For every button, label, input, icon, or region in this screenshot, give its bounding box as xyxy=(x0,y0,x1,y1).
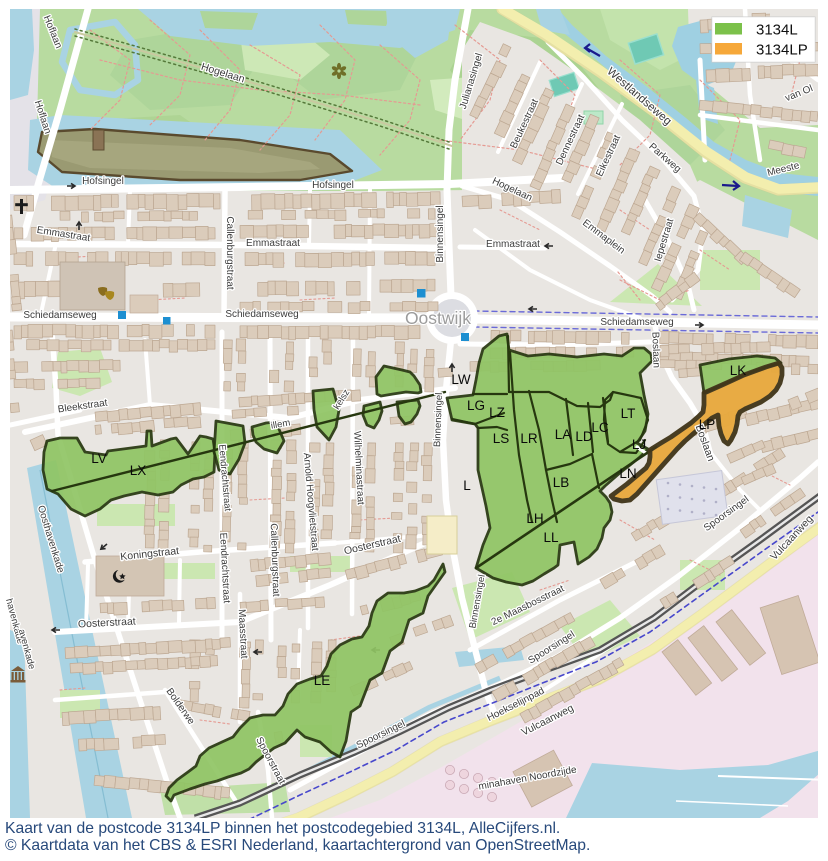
svg-text:Schiedamseweg: Schiedamseweg xyxy=(600,317,673,328)
svg-text:Binnensingel: Binnensingel xyxy=(435,205,446,262)
svg-text:LV: LV xyxy=(91,451,107,466)
svg-text:LZ: LZ xyxy=(489,405,505,420)
svg-text:LJ: LJ xyxy=(632,437,646,452)
svg-text:L: L xyxy=(463,478,471,493)
svg-text:LC: LC xyxy=(591,420,609,435)
svg-text:LA: LA xyxy=(555,427,572,442)
svg-text:LD: LD xyxy=(575,429,593,444)
svg-text:Oostwijk: Oostwijk xyxy=(405,308,471,328)
svg-text:LP: LP xyxy=(699,417,716,432)
svg-text:Kaart van de postcode 3134LP b: Kaart van de postcode 3134LP binnen het … xyxy=(5,820,560,837)
svg-text:LR: LR xyxy=(520,431,538,446)
svg-text:3134LP: 3134LP xyxy=(756,42,808,59)
svg-text:Schiedamseweg: Schiedamseweg xyxy=(225,309,298,320)
svg-text:Binnensingel: Binnensingel xyxy=(432,393,445,448)
svg-text:LX: LX xyxy=(130,463,147,478)
svg-text:Schiedamseweg: Schiedamseweg xyxy=(23,310,96,321)
svg-text:3134L: 3134L xyxy=(756,22,798,39)
svg-text:LT: LT xyxy=(621,406,636,421)
svg-text:LL: LL xyxy=(543,530,559,545)
svg-text:LS: LS xyxy=(493,431,510,446)
svg-text:LN: LN xyxy=(619,466,636,481)
svg-text:Callenburgstraat: Callenburgstraat xyxy=(224,216,235,290)
svg-text:Emmastraat: Emmastraat xyxy=(486,239,540,250)
svg-text:LE: LE xyxy=(314,673,331,688)
svg-text:Hofsingel: Hofsingel xyxy=(82,176,124,187)
svg-text:LW: LW xyxy=(451,372,471,387)
svg-text:LB: LB xyxy=(553,475,570,490)
svg-text:Hofsingel: Hofsingel xyxy=(312,180,354,191)
svg-text:Boslaan: Boslaan xyxy=(649,332,661,369)
svg-text:Emmastraat: Emmastraat xyxy=(246,238,300,249)
svg-text:LG: LG xyxy=(467,398,485,413)
svg-text:LK: LK xyxy=(730,363,747,378)
svg-text:LH: LH xyxy=(526,511,543,526)
svg-text:© Kaartdata van het CBS & ESRI: © Kaartdata van het CBS & ESRI Nederland… xyxy=(5,837,590,854)
